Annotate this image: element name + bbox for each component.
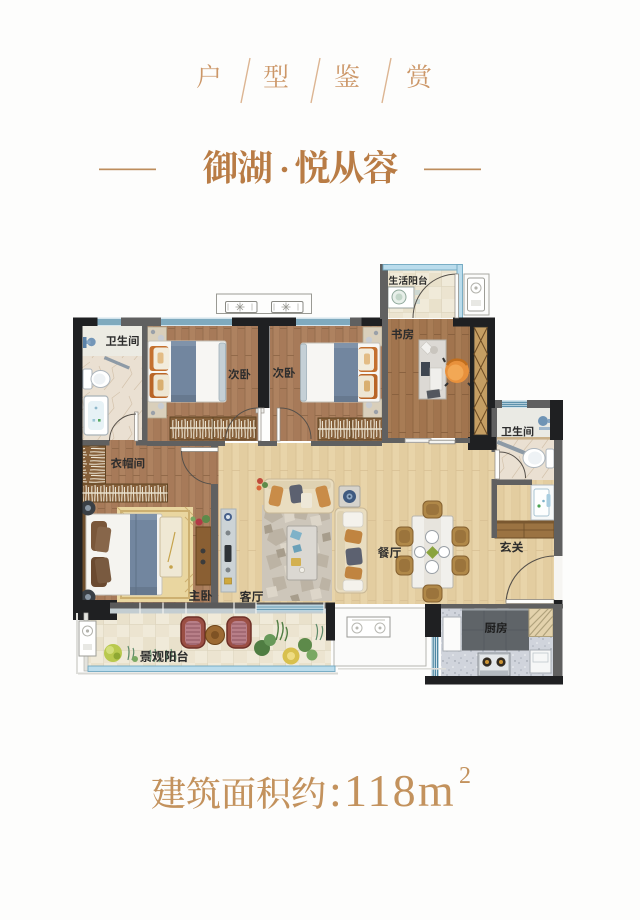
svg-text::118m: :118m	[329, 765, 456, 816]
svg-text:2: 2	[459, 763, 471, 789]
